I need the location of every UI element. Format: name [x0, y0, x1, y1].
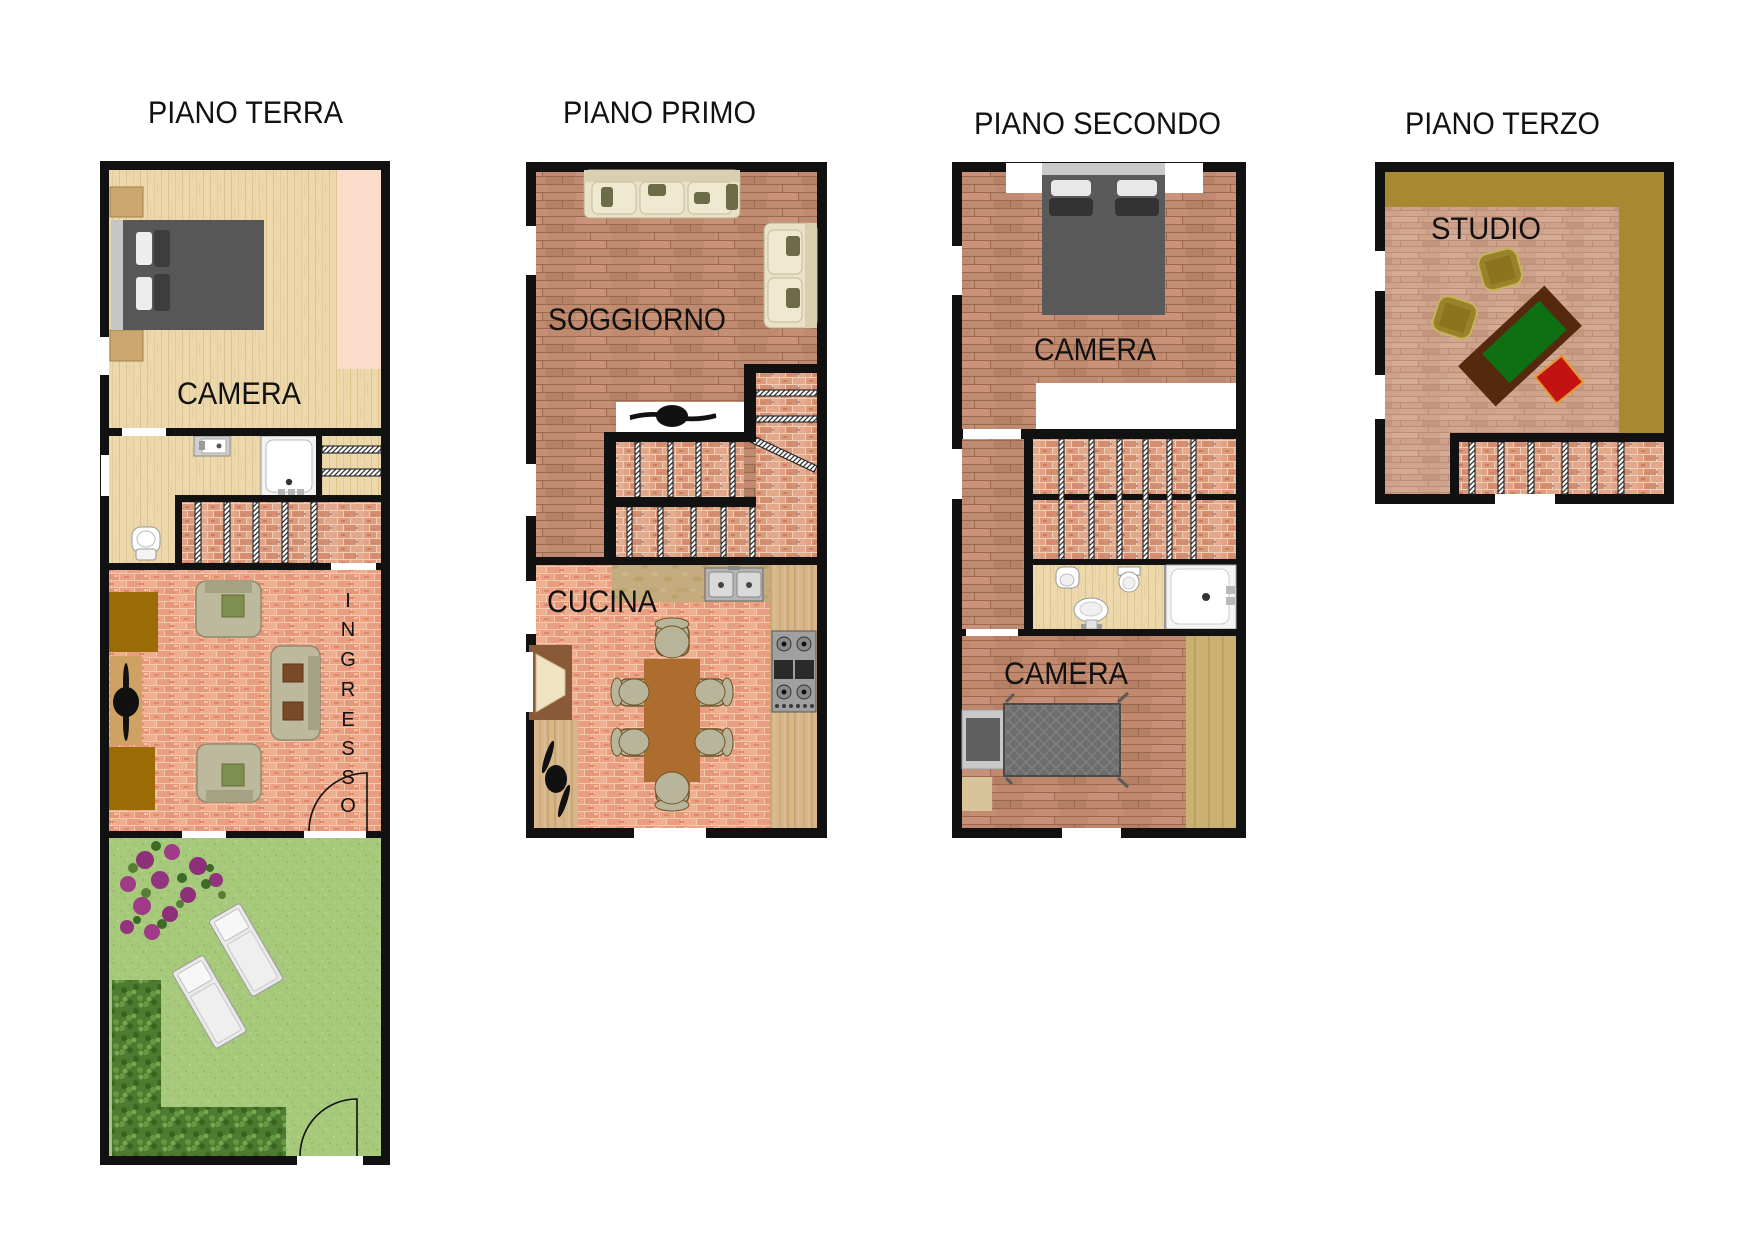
svg-text:PIANO TERZO: PIANO TERZO — [1405, 105, 1600, 141]
svg-text:I: I — [345, 590, 351, 612]
svg-text:R: R — [341, 679, 355, 701]
svg-text:PIANO SECONDO: PIANO SECONDO — [974, 105, 1221, 141]
svg-text:G: G — [340, 649, 356, 671]
svg-text:PIANO PRIMO: PIANO PRIMO — [563, 94, 756, 130]
svg-text:SOGGIORNO: SOGGIORNO — [548, 301, 726, 337]
svg-text:PIANO TERRA: PIANO TERRA — [148, 94, 343, 130]
svg-text:CAMERA: CAMERA — [1034, 331, 1156, 367]
svg-text:O: O — [340, 795, 356, 817]
svg-text:CUCINA: CUCINA — [547, 583, 657, 619]
svg-text:STUDIO: STUDIO — [1431, 210, 1541, 246]
svg-text:N: N — [341, 619, 355, 641]
svg-text:CAMERA: CAMERA — [177, 375, 301, 411]
svg-text:CAMERA: CAMERA — [1004, 655, 1128, 691]
svg-text:S: S — [341, 738, 354, 760]
svg-text:E: E — [341, 709, 354, 731]
